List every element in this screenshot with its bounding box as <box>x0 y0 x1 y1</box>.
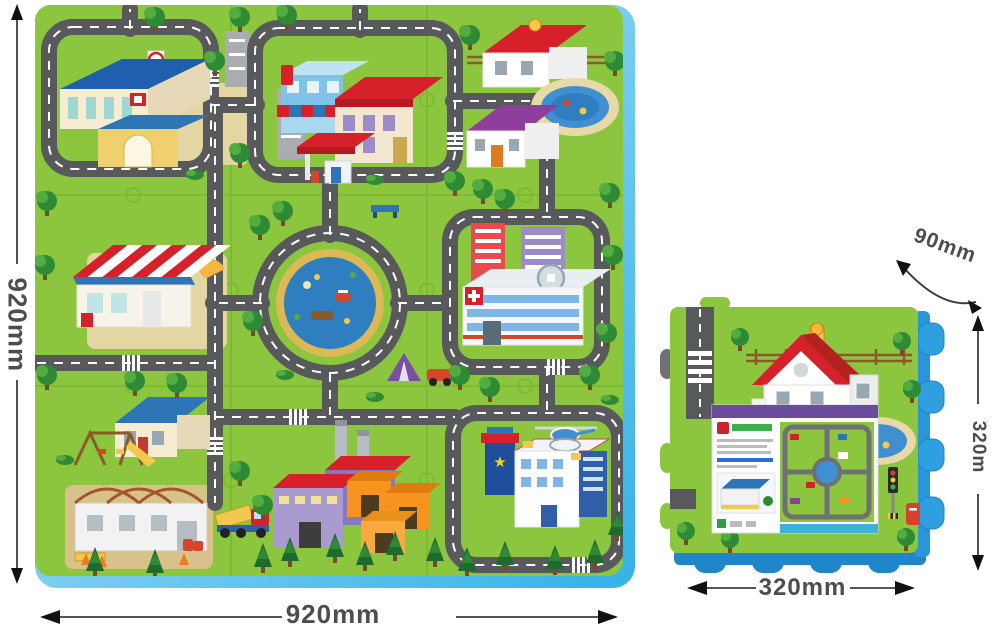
single-tile <box>660 297 944 573</box>
central-pond <box>276 249 384 357</box>
mat-width-label: 920mm <box>283 599 383 630</box>
packaging-card <box>712 405 878 533</box>
puzzle-tile-art <box>660 293 960 580</box>
play-mat-image: ★ <box>35 5 623 576</box>
svg-text:★: ★ <box>493 453 506 471</box>
postbox <box>281 65 293 85</box>
mat-height-label: 920mm <box>2 278 33 366</box>
play-mat-foam-edge: ★ <box>35 5 635 588</box>
mini-mat-preview <box>780 422 874 522</box>
product-dimension-diagram: ★ <box>0 0 1000 633</box>
product-thumbnail <box>717 473 775 513</box>
tile-width-label: 320mm <box>745 574 860 602</box>
ce-mark <box>730 521 742 527</box>
tile-side-label: 320m <box>967 403 989 491</box>
tile-postbox <box>906 503 920 525</box>
puzzle-tile-image <box>660 293 960 580</box>
brand-logo <box>717 422 729 434</box>
eco-logo <box>717 519 726 528</box>
play-mat-art: ★ <box>35 5 623 576</box>
